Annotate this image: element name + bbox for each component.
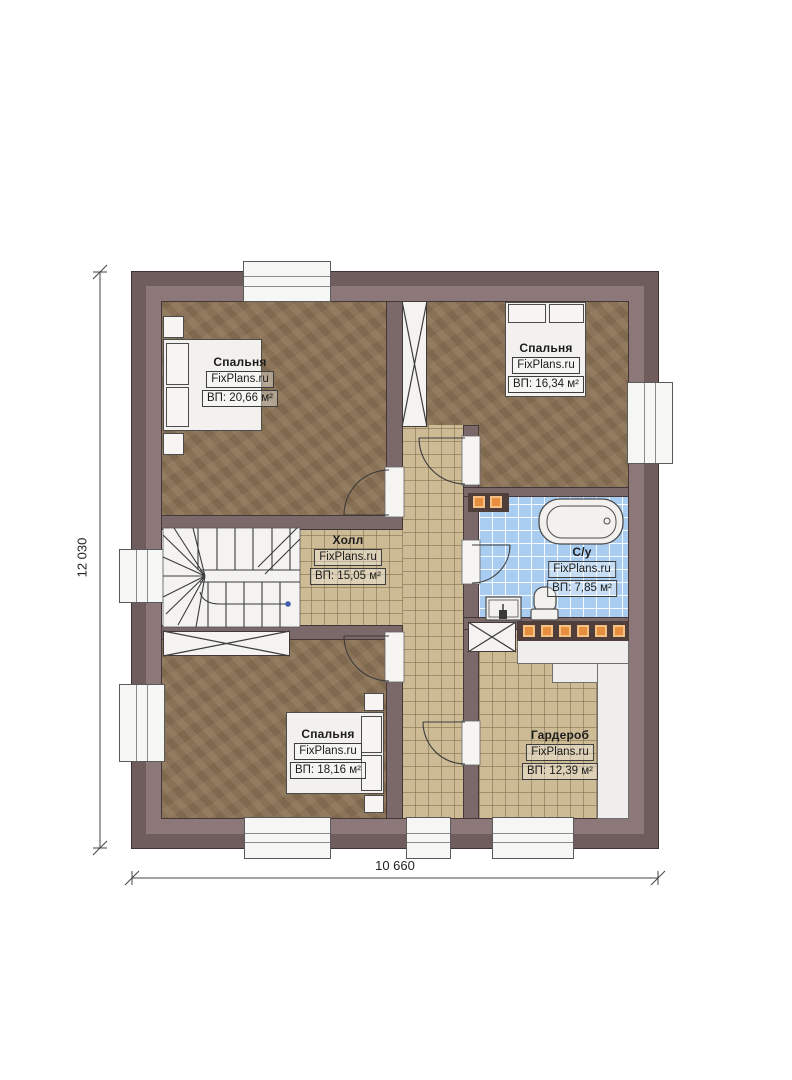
room-label-bedroom-tl: Спальня FixPlans.ru ВП: 20,66 м²: [202, 355, 278, 407]
dimension-width: 10 660: [345, 858, 445, 873]
area-box: ВП: 20,66 м²: [202, 390, 278, 407]
room-name: Спальня: [213, 355, 266, 369]
brand-box: FixPlans.ru: [512, 357, 580, 374]
room-name: Спальня: [301, 727, 354, 741]
floor-plan: Спальня FixPlans.ru ВП: 20,66 м² Спальня…: [0, 0, 792, 1080]
dimension-height: 12 030: [75, 518, 90, 598]
brand-box: FixPlans.ru: [314, 549, 382, 566]
room-label-wardrobe: Гардероб FixPlans.ru ВП: 12,39 м²: [522, 728, 598, 780]
area-box: ВП: 12,39 м²: [522, 763, 598, 780]
area-box: ВП: 16,34 м²: [508, 376, 584, 393]
staircase: [163, 528, 300, 627]
room-name: Холл: [333, 533, 364, 547]
bathtub: [539, 499, 623, 544]
door-openings: [385, 436, 480, 765]
room-name: Спальня: [519, 341, 572, 355]
room-name: С/у: [572, 545, 591, 559]
area-box: ВП: 18,16 м²: [290, 762, 366, 779]
room-label-bedroom-tr: Спальня FixPlans.ru ВП: 16,34 м²: [508, 341, 584, 393]
brand-box: FixPlans.ru: [548, 561, 616, 578]
area-box: ВП: 15,05 м²: [310, 568, 386, 585]
room-label-hall: Холл FixPlans.ru ВП: 15,05 м²: [310, 533, 386, 585]
plan-linework: [0, 0, 792, 1080]
room-label-bedroom-bl: Спальня FixPlans.ru ВП: 18,16 м²: [290, 727, 366, 779]
brand-box: FixPlans.ru: [526, 744, 594, 761]
sink: [486, 597, 521, 620]
area-box: ВП: 7,85 м²: [547, 580, 617, 597]
room-label-bathroom: С/у FixPlans.ru ВП: 7,85 м²: [547, 545, 617, 597]
brand-box: FixPlans.ru: [294, 743, 362, 760]
room-name: Гардероб: [531, 728, 589, 742]
brand-box: FixPlans.ru: [206, 371, 274, 388]
door-swings: [344, 438, 510, 764]
